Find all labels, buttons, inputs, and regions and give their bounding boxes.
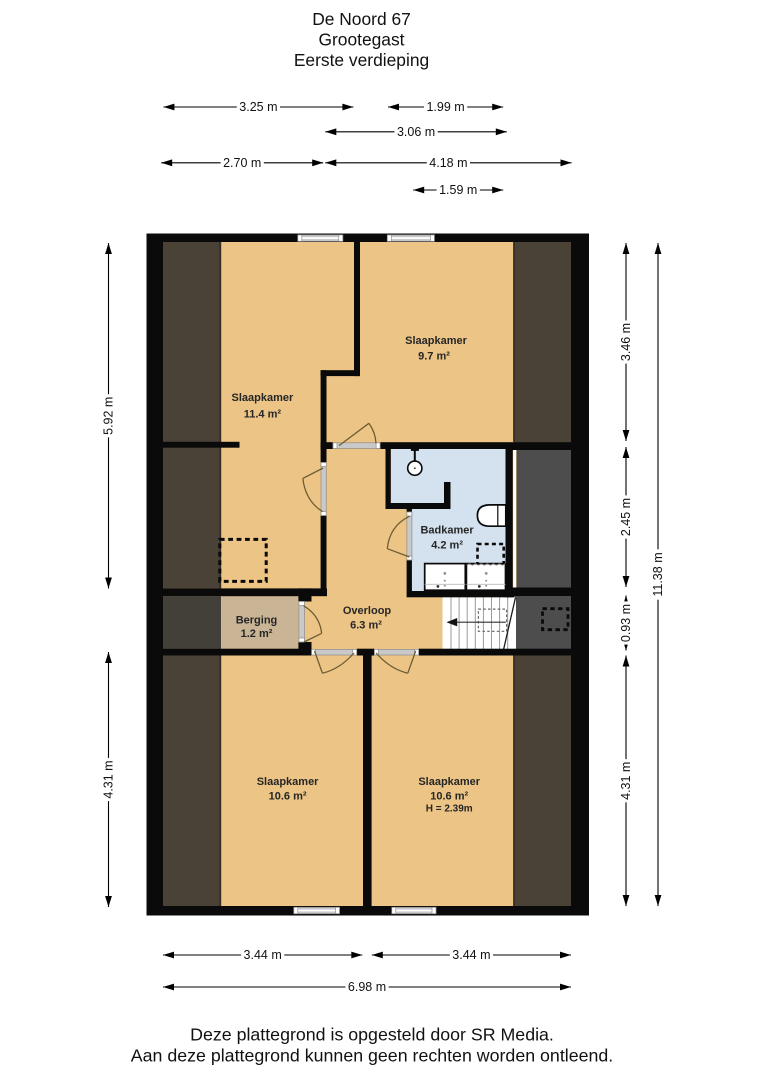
svg-text:4.18 m: 4.18 m	[429, 156, 467, 170]
svg-text:4.31 m: 4.31 m	[619, 762, 633, 800]
svg-text:Aan deze plattegrond kunnen ge: Aan deze plattegrond kunnen geen rechten…	[131, 1046, 613, 1066]
svg-text:1.99 m: 1.99 m	[426, 100, 464, 114]
svg-text:Grootegast: Grootegast	[318, 30, 404, 50]
svg-text:Slaapkamer: Slaapkamer	[232, 392, 294, 404]
svg-text:3.46 m: 3.46 m	[619, 323, 633, 361]
svg-text:3.44 m: 3.44 m	[452, 948, 490, 962]
svg-text:H = 2.39m: H = 2.39m	[426, 804, 473, 815]
svg-text:10.6 m²: 10.6 m²	[269, 791, 307, 803]
svg-text:6.3 m²: 6.3 m²	[350, 620, 382, 632]
svg-text:Overloop: Overloop	[343, 605, 392, 617]
svg-text:4.2 m²: 4.2 m²	[431, 540, 463, 552]
svg-text:10.6 m²: 10.6 m²	[430, 791, 468, 803]
svg-text:11.38 m: 11.38 m	[651, 552, 665, 596]
svg-text:3.25 m: 3.25 m	[239, 100, 277, 114]
svg-text:4.31 m: 4.31 m	[102, 760, 116, 798]
svg-text:Eerste verdieping: Eerste verdieping	[294, 50, 429, 70]
svg-text:3.44 m: 3.44 m	[244, 948, 282, 962]
svg-text:0.93 m: 0.93 m	[619, 604, 633, 642]
svg-text:2.70 m: 2.70 m	[223, 156, 261, 170]
svg-text:2.45 m: 2.45 m	[619, 498, 633, 536]
svg-text:Badkamer: Badkamer	[420, 525, 474, 537]
svg-text:9.7 m²: 9.7 m²	[418, 351, 450, 363]
svg-text:Slaapkamer: Slaapkamer	[405, 335, 467, 347]
svg-text:1.59 m: 1.59 m	[439, 183, 477, 197]
svg-text:3.06 m: 3.06 m	[397, 125, 435, 139]
svg-text:De Noord 67: De Noord 67	[312, 9, 411, 29]
svg-text:Deze plattegrond is opgesteld: Deze plattegrond is opgesteld door SR Me…	[190, 1025, 554, 1045]
svg-text:5.92 m: 5.92 m	[102, 397, 116, 435]
svg-text:Slaapkamer: Slaapkamer	[257, 776, 319, 788]
svg-text:Slaapkamer: Slaapkamer	[418, 776, 480, 788]
svg-text:6.98 m: 6.98 m	[348, 980, 386, 994]
svg-text:Berging: Berging	[236, 615, 278, 627]
svg-text:11.4 m²: 11.4 m²	[244, 409, 282, 421]
svg-text:1.2 m²: 1.2 m²	[241, 628, 273, 640]
